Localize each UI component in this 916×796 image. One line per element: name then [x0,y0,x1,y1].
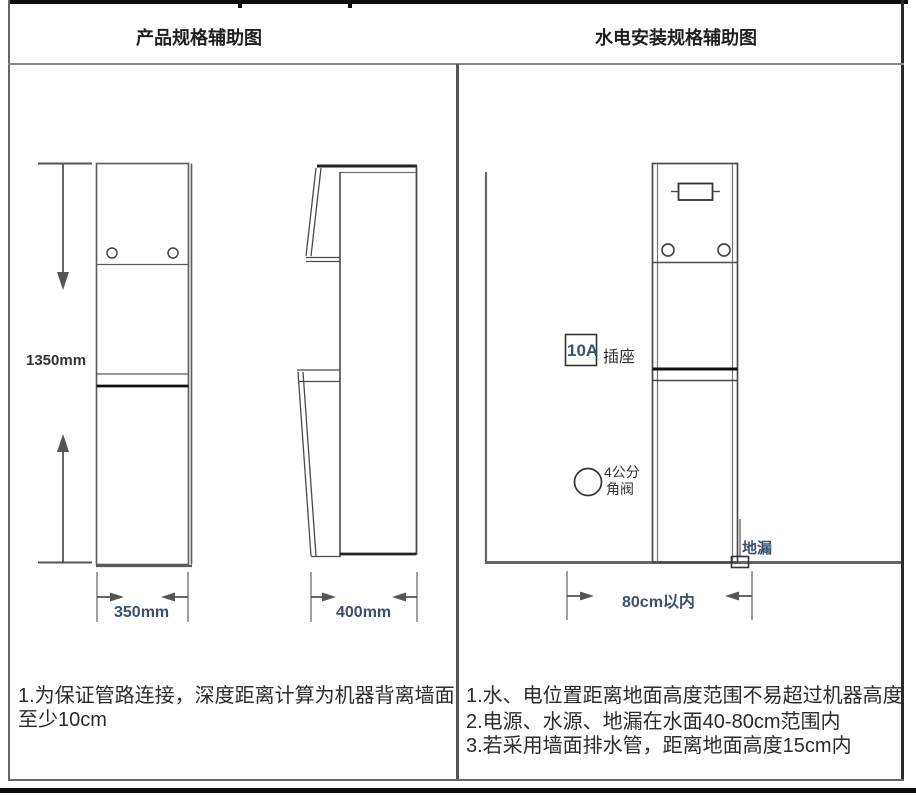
diagram-linework [0,0,916,796]
wall-floor [485,172,901,563]
depth-dimension-label: 400mm [336,604,391,622]
spec-sheet: 产品规格辅助图 水电安装规格辅助图 [0,0,916,796]
install-note-2: 2.电源、水源、地漏在水面40-80cm范围内 [466,710,841,734]
socket-rating-label: 10A [567,341,598,361]
drain-label: 地漏 [742,537,772,558]
width-dimension-label: 350mm [114,604,169,622]
height-dimension-label: 1350mm [26,352,86,369]
socket-label: 插座 [603,343,635,367]
product-note-line1: 1.为保证管路连接，深度距离计算为机器背离墙面 [18,684,455,708]
install-note-3: 3.若采用墙面排水管，距离地面高度15cm内 [466,734,852,758]
valve-label-line2: 角阀 [606,479,634,499]
install-note-1: 1.水、电位置距离地面高度范围不易超过机器高度 [466,684,903,708]
front-view-diagram [96,164,192,567]
valve-symbol [575,469,602,496]
distance-label: 80cm以内 [622,588,695,612]
install-machine-diagram [653,164,738,563]
product-note-line2: 至少10cm [18,708,107,732]
side-view-diagram [297,166,417,557]
